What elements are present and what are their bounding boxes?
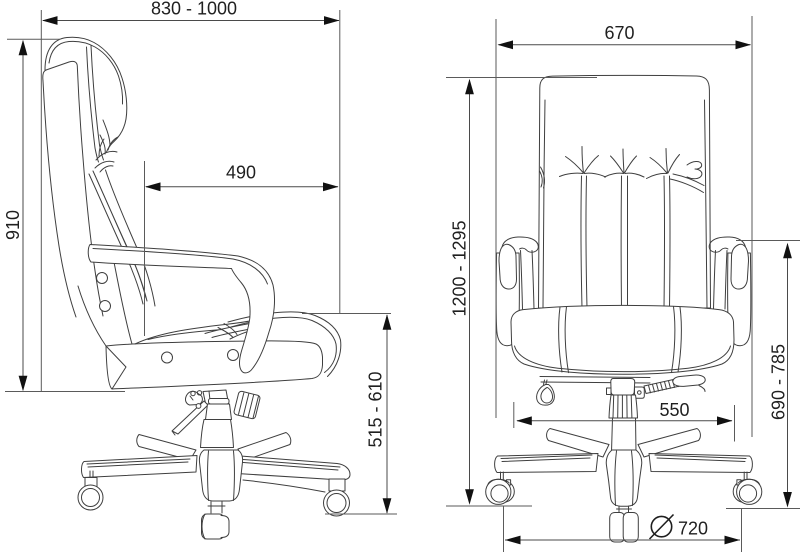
- svg-text:910: 910: [3, 210, 23, 240]
- svg-text:720: 720: [678, 519, 708, 539]
- svg-text:690 - 785: 690 - 785: [769, 344, 789, 420]
- svg-text:830 - 1000: 830 - 1000: [151, 0, 237, 18]
- svg-text:550: 550: [659, 400, 689, 420]
- svg-text:515 - 610: 515 - 610: [365, 371, 385, 447]
- svg-text:1200 - 1295: 1200 - 1295: [450, 220, 470, 316]
- svg-text:490: 490: [226, 162, 256, 182]
- svg-text:670: 670: [604, 23, 634, 43]
